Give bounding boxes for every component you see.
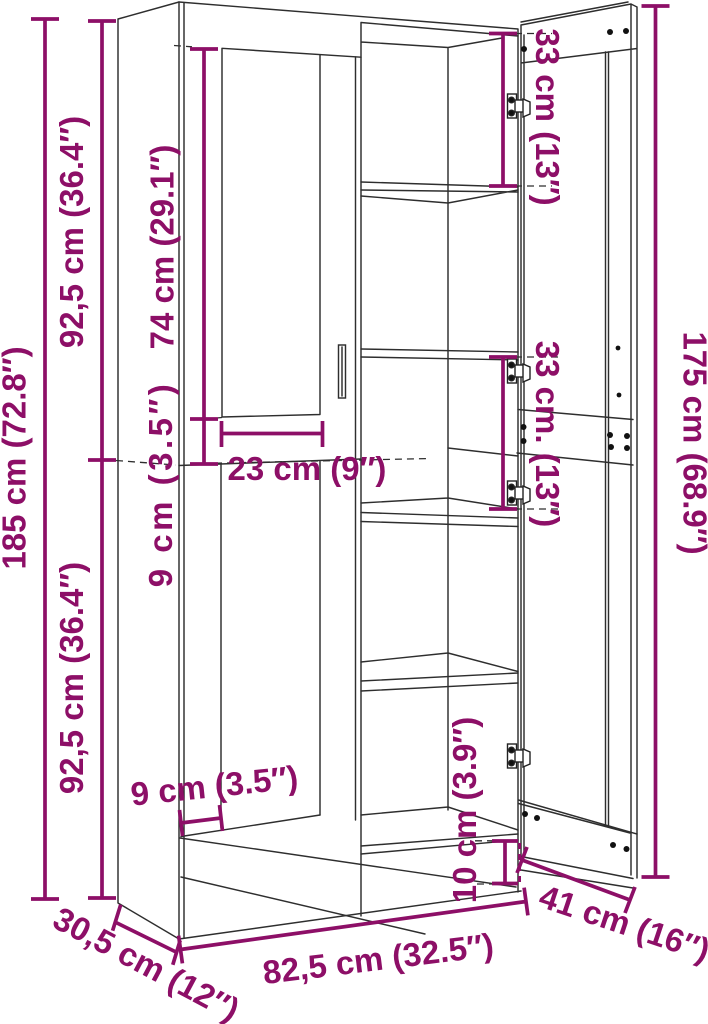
svg-text:82,5 cm (32.5″): 82,5 cm (32.5″) xyxy=(261,926,496,991)
svg-text:10 cm (3.9″): 10 cm (3.9″) xyxy=(446,717,483,903)
svg-text:23 cm (9″): 23 cm (9″) xyxy=(228,450,387,487)
svg-text:175 cm (68.9″): 175 cm (68.9″) xyxy=(677,331,708,554)
svg-text:92,5 cm (36.4″): 92,5 cm (36.4″) xyxy=(53,116,90,348)
svg-text:9 cm (3.5″): 9 cm (3.5″) xyxy=(142,381,179,588)
svg-text:41 cm (16″): 41 cm (16″) xyxy=(535,877,708,968)
svg-text:185 cm (72.8″): 185 cm (72.8″) xyxy=(0,346,33,569)
svg-text:92,5 cm (36.4″): 92,5 cm (36.4″) xyxy=(53,562,90,794)
svg-text:33 cm (13″): 33 cm (13″) xyxy=(529,28,566,205)
svg-text:33 cm. (13″): 33 cm. (13″) xyxy=(529,341,566,527)
svg-text:9 cm (3.5″): 9 cm (3.5″) xyxy=(129,758,300,812)
svg-text:30,5 cm (12″): 30,5 cm (12″) xyxy=(47,899,245,1024)
svg-text:74 cm (29.1″): 74 cm (29.1″) xyxy=(144,145,181,350)
